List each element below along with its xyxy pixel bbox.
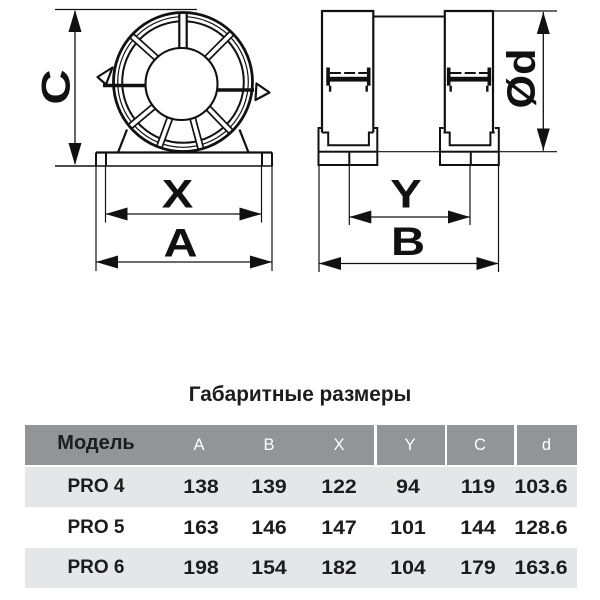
- svg-text:A: A: [163, 221, 197, 266]
- svg-text:C: C: [35, 69, 79, 104]
- svg-text:Y: Y: [390, 172, 421, 217]
- svg-text:B: B: [391, 219, 425, 264]
- svg-text:X: X: [162, 172, 193, 217]
- svg-text:Ød: Ød: [498, 49, 543, 109]
